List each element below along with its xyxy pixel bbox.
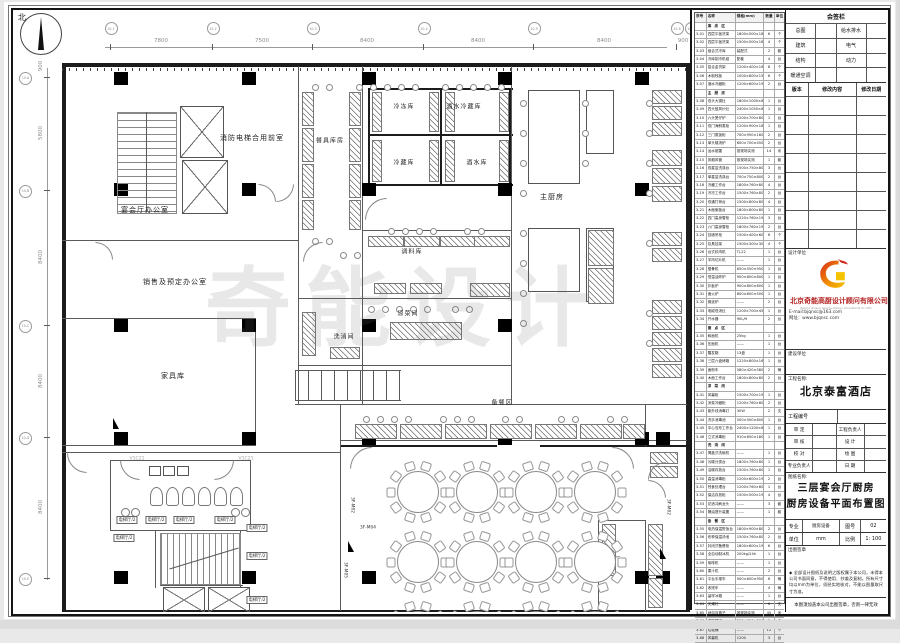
door-swing (258, 184, 276, 202)
equipment-unit (499, 140, 509, 182)
project-no-section: 工程编号 (786, 410, 886, 424)
stair-rail (146, 112, 147, 212)
chair (505, 557, 514, 567)
elevator-shaft (163, 587, 205, 612)
grid-bubble: 10-D (19, 432, 32, 445)
dimension-tick (212, 44, 213, 50)
dimension-tick (44, 325, 50, 326)
north-compass-circle (20, 13, 62, 55)
staircase (117, 112, 177, 214)
equipment-row: 3-28 锯骨机 650×550×950 1 台 (695, 266, 784, 274)
wall (340, 445, 497, 447)
project-name-label: 工程名称: (786, 375, 886, 383)
equipment-row: 3-09 四头鼓风炒灶 2400×1050×800+450 1 台 (695, 106, 784, 114)
equipment-tag (646, 190, 653, 197)
equipment-row: 3-26 台式绞肉机 TJ-22 1 台 (695, 249, 784, 257)
grid-bubble: 10-4 (418, 22, 431, 35)
equipment-tag (516, 416, 523, 423)
equipment-tag (416, 228, 423, 235)
equipment-row: 3-08 双头大锅灶 1800×1000×800+450 1 台 (695, 98, 784, 106)
equipment-row: 3-43 紫外线消毒灯 30W 2 支 (695, 408, 784, 416)
grid-bubble: 10-2 (207, 22, 220, 35)
company-watermark: 奇能设计 (205, 238, 605, 363)
equipment-tag (520, 190, 527, 197)
grid-bubble: 10-5 (528, 22, 541, 35)
chair (446, 557, 455, 567)
equipment-tag (356, 84, 363, 91)
equipment-row: 3-23 六门高身雪柜 1800×760×1950 2 台 (695, 224, 784, 232)
equipment-tag (456, 84, 463, 91)
urinal (230, 487, 243, 506)
equipment-unit (652, 232, 682, 246)
chair (564, 487, 573, 497)
chair (420, 582, 432, 594)
equipment-row: 3-34 开水器 90L/H 2 台 (695, 316, 784, 324)
equipment-row: 3-55 电热保温售饭台 1800×900×800 2 台 (695, 526, 784, 534)
chair (446, 487, 455, 497)
equipment-table-header: 序号 名称 规格(mm) 数量 单位 (695, 13, 784, 23)
column (656, 432, 670, 445)
equipment-unit (302, 128, 314, 162)
equipment-row: 3-44 洗手消毒池 500×500×800 1 台 (695, 417, 784, 425)
dimension-text: 900 (678, 38, 689, 44)
equipment-tag (502, 416, 509, 423)
chair (404, 512, 416, 524)
revision-row (786, 211, 886, 230)
room-label-beverage-cold-store: 酒水冷藏库 (446, 102, 481, 111)
equipment-unit (429, 140, 439, 182)
equipment-row: 3-60 果汁机 —— 2 台 (695, 568, 784, 576)
wall (62, 63, 66, 612)
equipment-row: 备 餐 区 (695, 518, 784, 526)
label-elevator-hall: 电梯厅/2 (173, 516, 194, 524)
equipment-unit (445, 92, 455, 132)
grid-bubble: 10-C (19, 320, 32, 333)
column (242, 432, 256, 445)
chair (522, 512, 534, 524)
door-swing (350, 447, 372, 469)
equipment-unit (652, 300, 682, 314)
partition-wall (160, 585, 243, 586)
equipment-row: 3-07 酒水冷藏柜 1200×600×1950 2 台 (695, 81, 784, 89)
equipment-tag (646, 100, 653, 107)
equipment-row: 凉 菜 间 (695, 383, 784, 391)
equipment-tag (646, 340, 653, 347)
dimension-line-top (105, 47, 667, 48)
cubicle-partition (360, 370, 361, 400)
label-elevator-hall: 电梯厅/2 (145, 516, 166, 524)
door-swing (648, 462, 666, 480)
equipment-tag (430, 228, 437, 235)
grid-bubble: 10-6 (671, 22, 684, 35)
partition-wall (62, 445, 256, 446)
chair (387, 557, 396, 567)
revision-row (786, 135, 886, 154)
column (242, 72, 256, 85)
design-unit-section: 设计单位 北京奇能高厨设计顾问有限公司 Beijing Qineng Gaoch… (786, 249, 886, 350)
equipment-row: 3-54 隔油提升装置 —— 1 套 (695, 509, 784, 517)
door-wedge (348, 541, 354, 552)
cad-drawing-screenshot: { "watermark": "奇能设计", "north_label": "北… (0, 0, 900, 629)
equipment-tag (405, 416, 412, 423)
equipment-tag (621, 416, 628, 423)
banquet-table (574, 471, 616, 513)
page-backdrop-right (896, 0, 900, 629)
chair (387, 487, 396, 497)
equipment-tag (468, 416, 475, 423)
equipment-tag (312, 84, 319, 91)
equipment-tag (646, 310, 653, 317)
door-swing (276, 184, 294, 202)
dimension-text: 8400 (597, 38, 611, 44)
equipment-row: 3-22 四门高身雪柜 1220×760×1950 3 台 (695, 215, 784, 223)
column (242, 571, 256, 584)
revision-row (786, 230, 886, 248)
equipment-row: 3-36 压面机 —— 1 台 (695, 341, 784, 349)
room-label-furniture-store: 家具库 (161, 371, 185, 381)
partition-wall (295, 400, 401, 401)
room-label-fire-elevator-lobby: 消防电梯合用前室 (220, 133, 284, 143)
equipment-row: 3-59 咖啡机 —— 1 台 (695, 560, 784, 568)
room-label-cold-dish-room: 凉菜间 (397, 309, 418, 318)
equipment-row: 3-33 电磁低汤灶 1200×700×450 1 台 (695, 308, 784, 316)
banquet-table (456, 471, 498, 513)
equipment-unit (490, 424, 532, 439)
column (362, 183, 376, 196)
drawing-name-line1: 三层宴会厅厨房 (786, 481, 886, 497)
label-elevator-hall: 电梯厅/2 (116, 516, 137, 524)
approval-row: 校 对 绘 图 (786, 449, 886, 461)
signature-row: 建筑 电气 (786, 39, 886, 54)
toilet-fixture (149, 466, 161, 476)
equipment-row: 3-39 面粉车 580×420×580 2 辆 (695, 367, 784, 375)
equipment-row: 3-17 单星盆洗涤台 700×750×800 2 台 (695, 174, 784, 182)
dimension-text: 8400 (38, 500, 44, 514)
equipment-tag (388, 228, 395, 235)
equipment-row: 3-35 和面机 25kg 1 台 (695, 333, 784, 341)
room-label-seasoning-store: 调料库 (401, 247, 422, 256)
revision-row (786, 173, 886, 192)
panel-divider (690, 10, 692, 610)
logo-graphic (817, 257, 855, 291)
elevator-shaft (180, 106, 224, 158)
equipment-tag (384, 84, 391, 91)
column (114, 571, 128, 584)
cubicle-partition (308, 370, 309, 400)
partition-wall (362, 365, 512, 366)
toilet-fixture (163, 466, 175, 476)
partition-wall (645, 520, 646, 611)
equipment-unit (372, 92, 382, 132)
room-label-pantry-area: 备餐区 (491, 398, 512, 407)
urinal (150, 487, 163, 506)
equipment-row: 3-06 木制栈板 1000×800×150 6 个 (695, 73, 784, 81)
chair (538, 530, 550, 542)
equipment-unit (302, 92, 314, 126)
dimension-text: 8400 (471, 38, 485, 44)
company-name-cn: 北京奇能高厨设计顾问有限公司 (790, 295, 882, 305)
cubicle-partition (295, 370, 296, 400)
equipment-tag (326, 84, 333, 91)
column (498, 183, 512, 196)
title-block: 会签栏 总图 给水排水 建筑 电气 结构 动力 暖通空调 (785, 10, 886, 612)
equipment-unit (652, 332, 682, 346)
equipment-unit (445, 424, 487, 439)
equipment-tag (398, 84, 405, 91)
equipment-row: 3-45 中心岛形工作台 2400×1200×800 1 台 (695, 425, 784, 433)
chair (420, 530, 432, 542)
signature-rows: 总图 给水排水 建筑 电气 结构 动力 暖通空调 (786, 24, 886, 82)
approval-rows: 审 定 工程负责人 审 核 设 计 校 对 绘 图 专业负责人 日 期 (786, 424, 886, 472)
dimension-tick (44, 578, 50, 579)
grid-bubble: 10-B (19, 185, 32, 198)
door-label: 3F-M02 (666, 499, 671, 515)
urinal (182, 487, 195, 506)
banquet-table (397, 541, 439, 583)
equipment-tag (454, 416, 461, 423)
equipment-row: 3-29 恒温油炸炉 900×800×800 1 台 (695, 274, 784, 282)
label-elevator-hall: 电梯厅/2 (246, 596, 267, 604)
chair (581, 512, 593, 524)
equipment-tag (520, 160, 527, 167)
chair (479, 582, 491, 594)
chair (463, 582, 475, 594)
chair (522, 582, 534, 594)
equipment-row: 3-58 全自动制冰机 200kg/24h 1 台 (695, 551, 784, 559)
cubicle-partition (321, 370, 322, 400)
project-name-value: 北京泰富酒店 (786, 383, 886, 399)
partition-wall (62, 452, 341, 453)
partition-wall (110, 530, 251, 531)
equipment-tag (646, 130, 653, 137)
approval-row: 专业负责人 日 期 (786, 461, 886, 472)
cubicle-partition (386, 370, 387, 400)
dimension-text: 7500 (255, 38, 269, 44)
equipment-row: 3-16 双星盆洗涤台 1500×750×800 3 台 (695, 165, 784, 173)
equipment-row: 3-13 单头矮汤炉 600×700×450 2 台 (695, 140, 784, 148)
equipment-row: 3-65 地沟及篦子 按现场实测 45 米 (695, 610, 784, 618)
equipment-unit (652, 106, 682, 120)
column (114, 72, 128, 85)
equipment-row: 3-40 木面工作台 1800×800×800 2 台 (695, 375, 784, 383)
kitchen-island (586, 90, 614, 154)
revision-row (786, 154, 886, 173)
chair (479, 512, 491, 524)
equipment-tag (558, 416, 565, 423)
equipment-unit (499, 92, 509, 132)
equipment-tag (470, 84, 477, 91)
room-label-beverage-store: 酒水库 (466, 158, 487, 167)
label-elevator-hall: 电梯厅/2 (246, 524, 267, 532)
chair (564, 557, 573, 567)
equipment-tag (582, 100, 589, 107)
equipment-row: 3-61 平台手推车 900×600×950 6 辆 (695, 576, 784, 584)
grid-bubble: 10-1 (105, 22, 118, 35)
drawing-name-value: 三层宴会厅厨房 厨房设备平面布置图 (786, 481, 886, 512)
equipment-row: 3-42 凉菜冷藏柜 1200×760×800 2 台 (695, 400, 784, 408)
equipment-row: 3-64 灭蝇灯 —— 6 支 (695, 601, 784, 609)
door-swing (120, 460, 140, 480)
grid-bubble: 10-E (19, 573, 32, 586)
partition-wall (155, 530, 156, 588)
banquet-table (515, 471, 557, 513)
equipment-row: 3-04 冷库制冷机组 配套 4 台 (695, 56, 784, 64)
equipment-row: 3-24 挂墙吊柜 1500×400×600 6 个 (695, 232, 784, 240)
equipment-row: 3-63 留样冰箱 —— 1 台 (695, 593, 784, 601)
equipment-row: 3-50 高温消毒柜 1200×600×1950 2 台 (695, 476, 784, 484)
dimension-tick (423, 44, 424, 50)
revision-row (786, 116, 886, 135)
stamp-section: 出图签章 ◆ 全部设计图纸及说明之版权属于本公司，未得本公司书面同意，不得使用、… (786, 546, 886, 597)
company-name-en: Beijing Qineng Gaochu Design Consultants… (791, 306, 881, 310)
copyright-note: ◆ 全部设计图纸及说明之版权属于本公司，未得本公司书面同意，不得使用、抄袭及复制… (786, 568, 886, 597)
signature-row: 结构 动力 (786, 54, 886, 69)
dimension-text: 8400 (38, 374, 44, 388)
wall-serration (62, 68, 690, 71)
door-swing (612, 447, 634, 469)
signature-row: 暖通空调 (786, 68, 886, 82)
column (242, 183, 256, 196)
cubicle-partition (347, 370, 348, 400)
equipment-row: 3-57 封闭式备餐柜 1800×600×1950 6 台 (695, 543, 784, 551)
grid-bubble: 10-A (19, 72, 32, 85)
equipment-row: 3-53 花洒冲刷龙头 —— 3 套 (695, 501, 784, 509)
dimension-text: 5800 (38, 126, 44, 140)
room-label-tableware-store: 餐具库房 (316, 136, 344, 145)
chair (538, 582, 550, 594)
partition-wall (250, 460, 251, 530)
equipment-tag (582, 130, 589, 137)
chair (404, 582, 416, 594)
equipment-unit (349, 128, 361, 162)
dimension-text: 900 (38, 61, 44, 72)
approval-row: 审 核 设 计 (786, 436, 886, 448)
column (635, 571, 649, 584)
wall (368, 88, 370, 186)
equipment-tag (520, 230, 527, 237)
dimension-tick (44, 437, 50, 438)
equipment-row: 3-51 残食处理台 1200×760×800 1 台 (695, 484, 784, 492)
dimension-text: 7800 (154, 38, 168, 44)
chair (597, 582, 609, 594)
revision-rows (786, 97, 886, 248)
column (114, 319, 128, 332)
door-swing (214, 460, 234, 480)
drawing-name-section: 图纸名称: 三层宴会厅厨房 厨房设备平面布置图 (786, 473, 886, 520)
equipment-row: 3-38 三层六盘烤箱 1220×800×1600 1 台 (695, 358, 784, 366)
door-label: 3F-M04 (360, 526, 376, 531)
chair (538, 512, 550, 524)
dimension-line-left (47, 68, 48, 580)
equipment-tag (498, 84, 505, 91)
equipment-unit (652, 122, 682, 136)
equipment-unit (652, 248, 682, 262)
equipment-tag (520, 100, 527, 107)
equipment-tag (402, 228, 409, 235)
equipment-row: 3-02 四层平板货架 1500×500×1800 4 个 (695, 39, 784, 47)
room-label-sales-office: 销售及预定办公室 (143, 277, 207, 287)
equipment-tag (478, 228, 485, 235)
company-website: 网址：www.bjqnsc.com (786, 315, 886, 321)
chair (479, 530, 491, 542)
north-needle (38, 17, 44, 50)
build-unit-section: 建设单位 (786, 350, 886, 375)
equipment-tag (370, 84, 377, 91)
revision-row (786, 97, 886, 116)
equipment-unit (652, 150, 682, 166)
equipment-unit (400, 424, 442, 439)
chair (618, 557, 627, 567)
equipment-row: 3-19 冷冻工作台 1500×760×800 2 台 (695, 190, 784, 198)
equipment-unit (652, 168, 682, 184)
revision-header: 版本 修改内容 修改日期 (786, 83, 886, 97)
drawing-name-line2: 厨房设备平面布置图 (786, 497, 886, 513)
signature-section: 会签栏 总图 给水排水 建筑 电气 结构 动力 暖通空调 (786, 10, 886, 83)
door-label: 3F-M05 (343, 562, 348, 578)
revision-row (786, 192, 886, 211)
equipment-row: 3-21 木面案板台 1800×800×800 1 台 (695, 207, 784, 215)
door-wedge (113, 418, 119, 429)
chair (581, 582, 593, 594)
dimension-text: 8400 (38, 250, 44, 264)
equipment-row: 3-68 风幕机 1200 3 台 (695, 635, 784, 643)
project-no-value (838, 410, 887, 423)
equipment-schedule-table: 序号 名称 规格(mm) 数量 单位 库 房 区 3-01 四层平板货架 180… (694, 12, 785, 604)
equipment-unit (349, 92, 361, 126)
equipment-unit (445, 140, 455, 182)
chair (463, 512, 475, 524)
equipment-tag (646, 160, 653, 167)
equipment-unit (429, 92, 439, 132)
equipment-tag (520, 130, 527, 137)
equipment-row: 3-46 立式消毒柜 910×650×1800 1 台 (695, 434, 784, 442)
equipment-row: 3-01 四层平板货架 1800×500×1800 6 个 (695, 31, 784, 39)
equipment-tag (464, 228, 471, 235)
chair (479, 460, 491, 472)
chair (597, 512, 609, 524)
banquet-table (574, 541, 616, 583)
equipment-tag (582, 160, 589, 167)
equipment-tag (646, 240, 653, 247)
dimension-tick (110, 44, 111, 50)
cubicle-partition (399, 370, 400, 400)
equipment-row: 3-25 炊具挂架 1500×300×300 4 个 (695, 241, 784, 249)
equipment-unit (652, 364, 682, 378)
wall (62, 63, 690, 67)
column (114, 432, 128, 445)
stamp-label: 出图签章 (786, 546, 886, 554)
validity-note: 本图须加盖本公司出图签章，否则一律无效 (786, 597, 886, 612)
label-elevator-hall: 电梯厅/2 (214, 516, 235, 524)
equipment-tag (442, 84, 449, 91)
equipment-row: 主 厨 房 (695, 90, 784, 98)
urinal (198, 487, 211, 506)
equipment-unit (648, 578, 663, 608)
room-label-freezer: 冷冻库 (393, 102, 414, 111)
approval-section: 审 定 工程负责人 审 核 设 计 校 对 绘 图 专业负责人 日 期 (786, 424, 886, 473)
cubicle-partition (373, 370, 374, 400)
urinal (166, 487, 179, 506)
chair (420, 460, 432, 472)
page-backdrop-bottom (0, 620, 900, 629)
equipment-row: 3-18 冷藏工作台 1800×760×800 4 台 (695, 182, 784, 190)
chair (505, 487, 514, 497)
partition-wall (298, 66, 299, 241)
equipment-row: 3-41 风幕柜 1500×700×1950 1 台 (695, 392, 784, 400)
room-label-cold-store: 冷藏库 (393, 158, 414, 167)
room-label-banquet-office: 宴会厅办公室 (121, 205, 169, 215)
banquet-table (456, 541, 498, 583)
